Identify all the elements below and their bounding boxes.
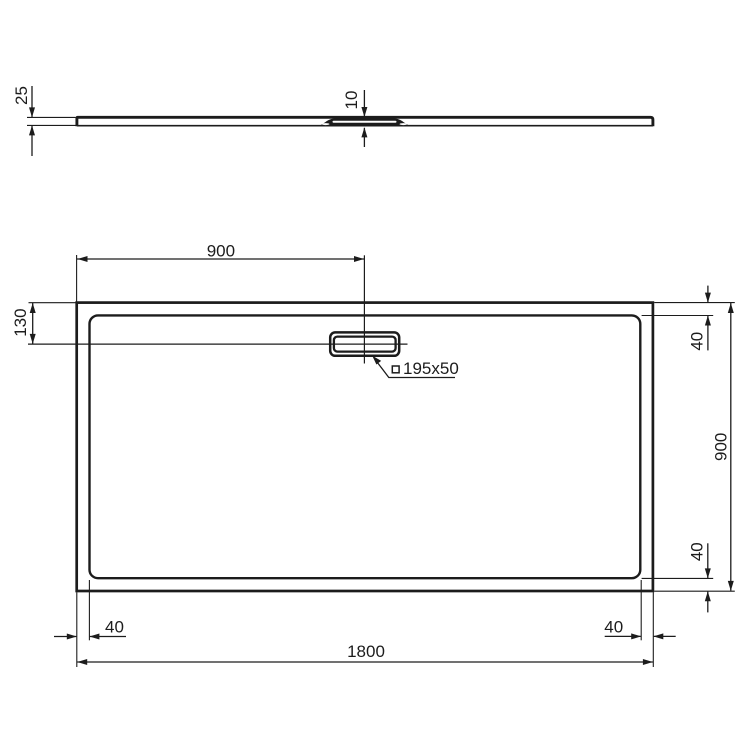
svg-text:40: 40 <box>604 618 623 637</box>
svg-text:10: 10 <box>342 91 361 110</box>
svg-text:195x50: 195x50 <box>403 359 459 378</box>
svg-text:130: 130 <box>11 308 30 336</box>
svg-text:40: 40 <box>688 332 707 351</box>
svg-text:40: 40 <box>105 618 124 637</box>
svg-text:1800: 1800 <box>347 642 385 661</box>
svg-text:40: 40 <box>688 542 707 561</box>
svg-text:900: 900 <box>207 241 235 260</box>
svg-text:25: 25 <box>12 86 31 105</box>
svg-text:900: 900 <box>711 433 730 461</box>
